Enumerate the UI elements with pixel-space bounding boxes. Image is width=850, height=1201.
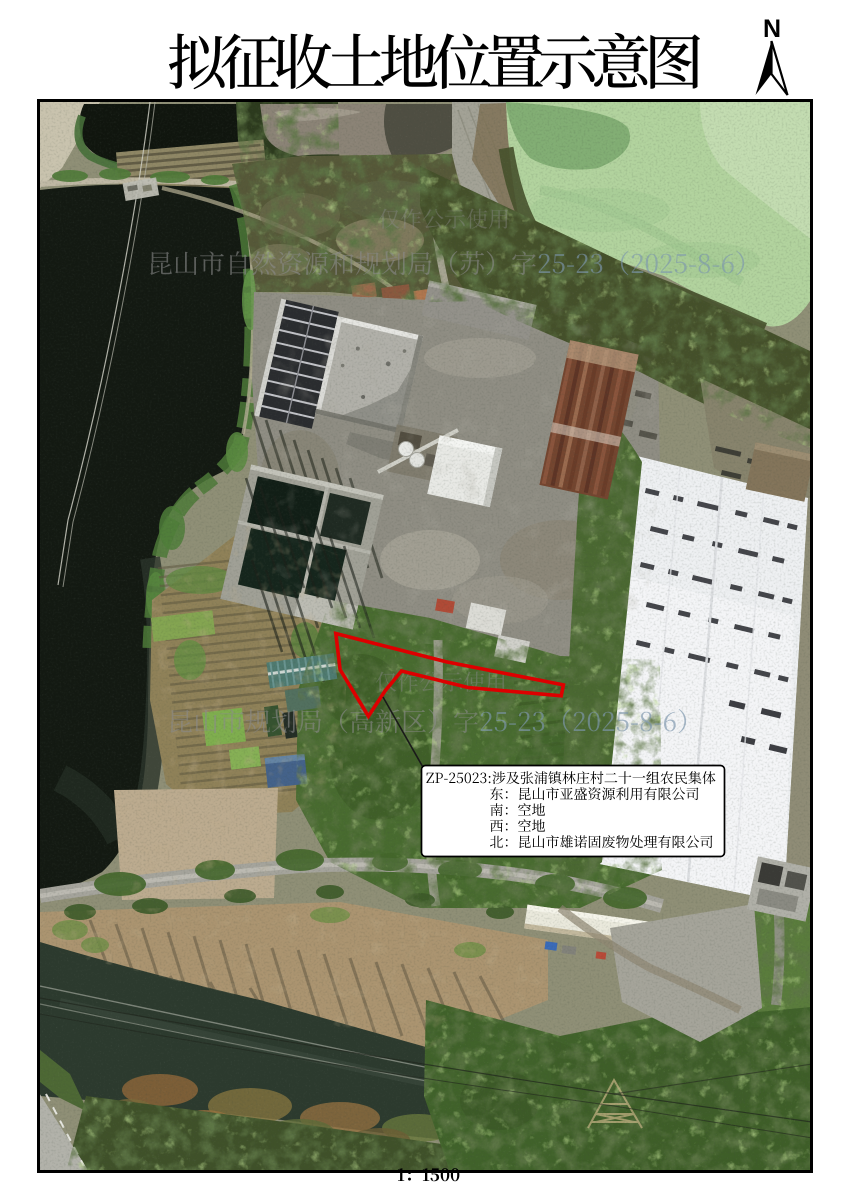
svg-text:N: N xyxy=(763,15,781,43)
